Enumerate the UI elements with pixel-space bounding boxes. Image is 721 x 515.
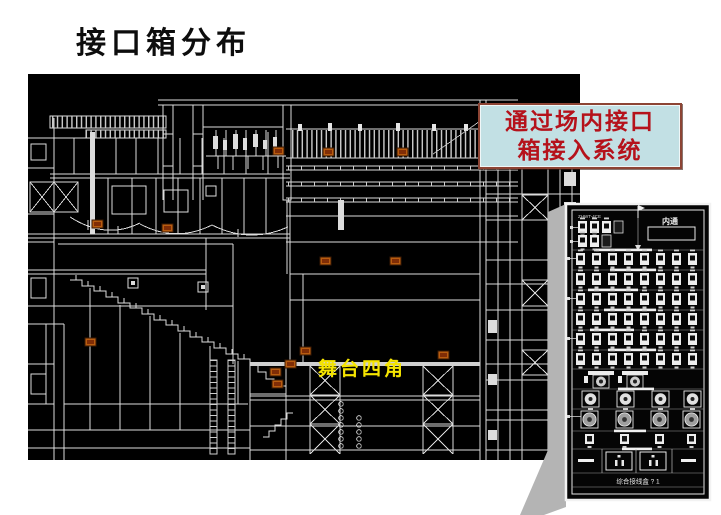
- callout-box: 通过场内接口 箱接入系统: [478, 103, 682, 169]
- interface-panel-detail: ZHWT-4CE 内通: [518, 195, 721, 515]
- panel-intercom-label: 内通: [662, 216, 678, 226]
- panel-bottom-label: 综合接线盒 ? 1: [616, 477, 660, 486]
- callout-line-2: 箱接入系统: [518, 136, 643, 165]
- callout-line-1: 通过场内接口: [505, 107, 655, 136]
- panel-3d-shadow: [520, 204, 566, 515]
- stage-corners-label: 舞台四角: [318, 357, 406, 380]
- slide: 接口箱分布: [0, 0, 721, 515]
- page-title: 接口箱分布: [76, 18, 251, 62]
